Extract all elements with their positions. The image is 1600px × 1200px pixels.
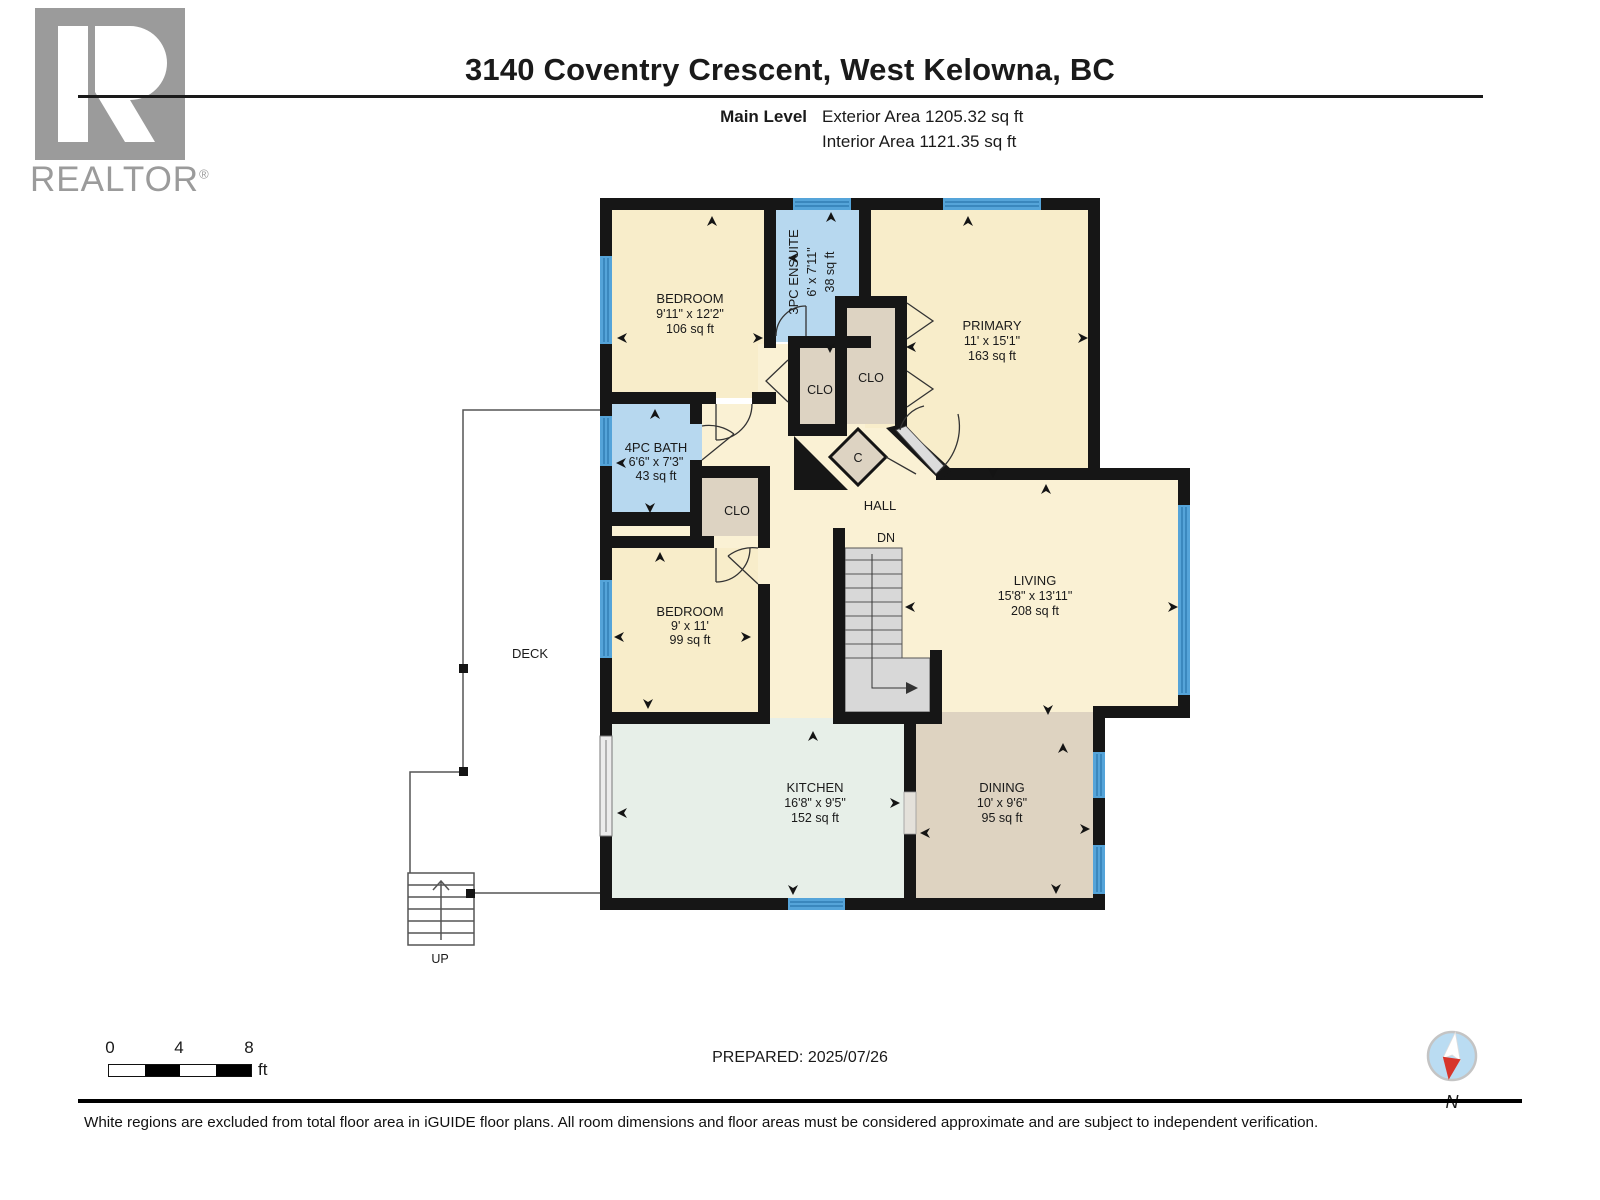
dining-dims: 10' x 9'6" [977, 796, 1027, 810]
primary-area: 163 sq ft [968, 349, 1016, 363]
scale-tick-0: 0 [95, 1038, 125, 1058]
compass-icon: N [1398, 1018, 1508, 1112]
floor-plan-page: REALTOR® 3140 Coventry Crescent, West Ke… [0, 0, 1600, 1200]
ensuite-area: 38 sq ft [823, 251, 837, 293]
bath-dims: 6'6" x 7'3" [629, 455, 684, 469]
page-title: 3140 Coventry Crescent, West Kelowna, BC [0, 52, 1580, 88]
living-dims: 15'8" x 13'11" [998, 589, 1073, 603]
bedroom2-area: 99 sq ft [670, 633, 712, 647]
closet2-label: CLO [724, 504, 750, 518]
kitchen-dims: 16'8" x 9'5" [784, 796, 846, 810]
header-divider-line [78, 95, 1483, 98]
bedroom2-dims: 9' x 11' [671, 619, 709, 633]
closet-right-label: CLO [858, 371, 884, 385]
closet-right-floor [847, 308, 895, 424]
scale-tick-8: 8 [234, 1038, 264, 1058]
bath-label: 4PC BATH [625, 440, 688, 455]
stairs-down-label: DN [877, 531, 895, 545]
deck-posts [459, 664, 475, 898]
closet-left-label: CLO [807, 383, 833, 397]
registered-mark: ® [199, 166, 210, 181]
scale-bar [108, 1064, 252, 1077]
dining-area: 95 sq ft [982, 811, 1024, 825]
scale-tick-4: 4 [164, 1038, 194, 1058]
living-label: LIVING [1014, 573, 1057, 588]
realtor-logo-text: REALTOR® [30, 160, 210, 200]
living-area: 208 sq ft [1011, 604, 1059, 618]
divider-sill [904, 792, 916, 834]
bedroom1-area: 106 sq ft [666, 322, 714, 336]
ensuite-dims: 6' x 7'11" [805, 247, 819, 296]
closet-c-label: C [853, 451, 862, 465]
deck-label: DECK [512, 646, 548, 661]
scale-unit: ft [258, 1060, 267, 1080]
stairs-up-label: UP [431, 952, 448, 966]
footer-divider-line [78, 1099, 1522, 1103]
primary-label: PRIMARY [963, 318, 1022, 333]
kitchen-label: KITCHEN [786, 780, 843, 795]
kitchen-floor [606, 718, 910, 904]
bedroom1-label: BEDROOM [656, 291, 723, 306]
disclaimer-text: White regions are excluded from total fl… [84, 1114, 1544, 1131]
ensuite-label: 3PC ENSUITE [786, 229, 801, 315]
dining-label: DINING [979, 780, 1025, 795]
bedroom1-dims: 9'11" x 12'2" [656, 307, 724, 321]
bath-area: 43 sq ft [636, 469, 678, 483]
level-label: Main Level [600, 107, 807, 127]
deck-outline [408, 410, 600, 945]
prepared-date: PREPARED: 2025/07/26 [600, 1049, 1000, 1067]
kitchen-area: 152 sq ft [791, 811, 839, 825]
primary-dims: 11' x 15'1" [964, 334, 1020, 348]
floor-plan: BEDROOM 9'11" x 12'2" 106 sq ft 3PC ENSU… [390, 185, 1210, 975]
interior-area: Interior Area 1121.35 sq ft [822, 132, 1016, 152]
exterior-area: Exterior Area 1205.32 sq ft [822, 107, 1023, 127]
hall-label: HALL [864, 498, 897, 513]
bedroom2-label: BEDROOM [656, 604, 723, 619]
